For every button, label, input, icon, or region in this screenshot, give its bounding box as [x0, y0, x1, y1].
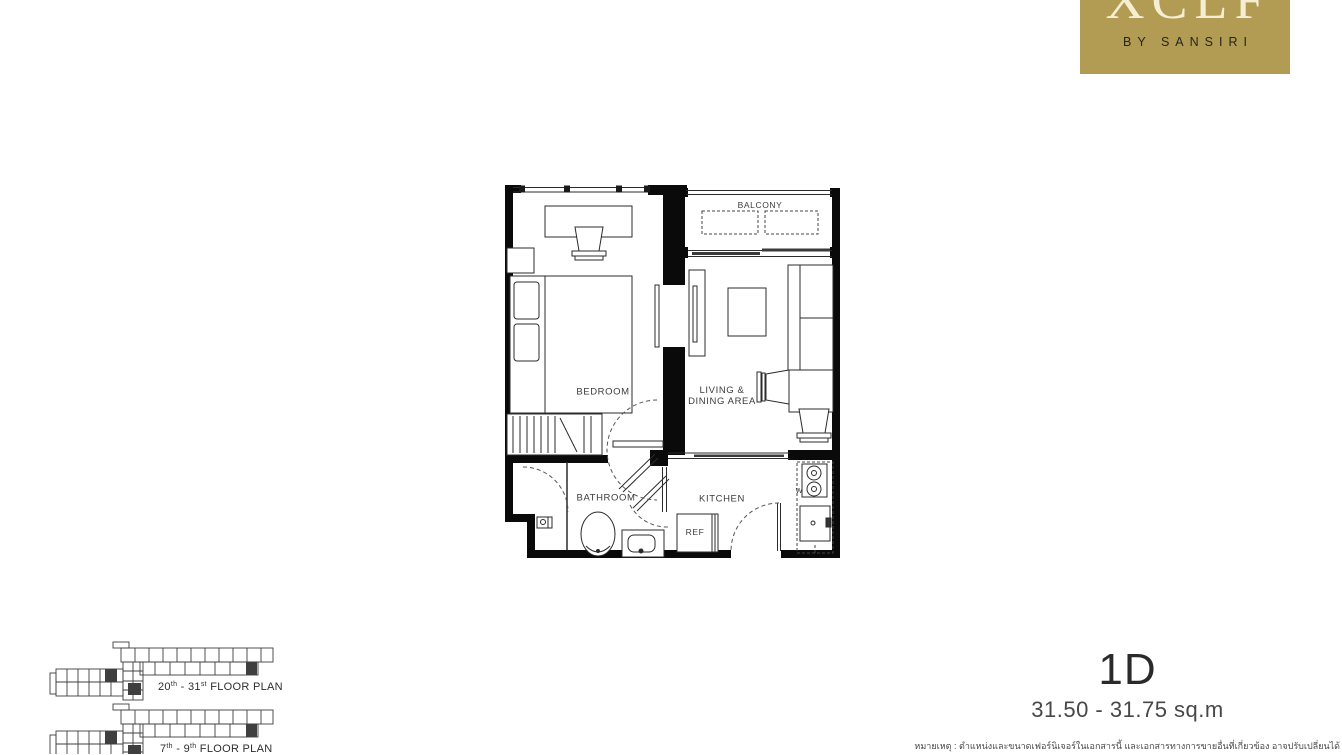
desk-and-chair [545, 206, 632, 260]
toilet [581, 512, 615, 556]
floors-from: 20 [158, 681, 171, 693]
thai-disclaimer: หมายเหตุ : ตำแหน่งและขนาดเฟอร์นิเจอร์ในเ… [914, 739, 1340, 753]
entrance-door-swing [731, 503, 779, 551]
floor-plan-page: { "brand": { "wordmark": "XCLF", "taglin… [0, 0, 1342, 754]
floor-plan-suffix: FLOOR PLAN [196, 743, 272, 755]
label-refrigerator: REF [686, 528, 705, 538]
brand-wordmark: XCLF [1080, 0, 1290, 27]
wardrobe [507, 414, 602, 455]
floor-plan-suffix: FLOOR PLAN [207, 681, 283, 693]
label-balcony: BALCONY [738, 201, 783, 211]
balcony-ac-pad-1 [702, 211, 758, 234]
tv-console [689, 270, 705, 356]
brand-tagline: BY SANSIRI [1080, 35, 1290, 49]
unit-area-range: 31.50 - 31.75 sq.m [1015, 698, 1240, 722]
closet-door-swing [523, 467, 568, 512]
label-washer: W [796, 488, 803, 496]
label-bathroom: BATHROOM [577, 494, 636, 505]
sofa [788, 265, 833, 372]
entrance-door-leaf [778, 503, 781, 551]
entry-console [613, 441, 663, 447]
bedroom-door-leaf [655, 285, 659, 347]
floor-plan-drawing [0, 0, 1342, 754]
key-plan-caption-upper: 20th - 31st FLOOR PLAN [158, 681, 283, 693]
unit-code: 1D [1015, 648, 1240, 692]
brand-logo: XCLF BY SANSIRI [1080, 0, 1290, 74]
label-kitchen: KITCHEN [699, 495, 745, 506]
coffee-table [728, 288, 766, 336]
dining-set [757, 370, 833, 442]
water-heater [537, 517, 552, 528]
label-living-line2: DINING AREA [688, 397, 756, 408]
bathroom-sink [622, 530, 664, 557]
stove [802, 464, 827, 497]
balcony-ac-pad-2 [765, 211, 818, 234]
label-bedroom: BEDROOM [576, 388, 629, 399]
bedroom-door-swing [607, 400, 657, 500]
kitchen-sink [800, 506, 831, 541]
floors-separator: - [177, 681, 188, 693]
key-plan-caption-lower: 7th - 9th FLOOR PLAN [160, 743, 272, 755]
floors-separator: - [173, 743, 184, 755]
unit-info: 1D 31.50 - 31.75 sq.m [1015, 648, 1240, 722]
bedside-table [507, 248, 534, 273]
label-living-dining: LIVING & DINING AREA [688, 386, 756, 408]
floors-to: 31 [188, 681, 201, 693]
